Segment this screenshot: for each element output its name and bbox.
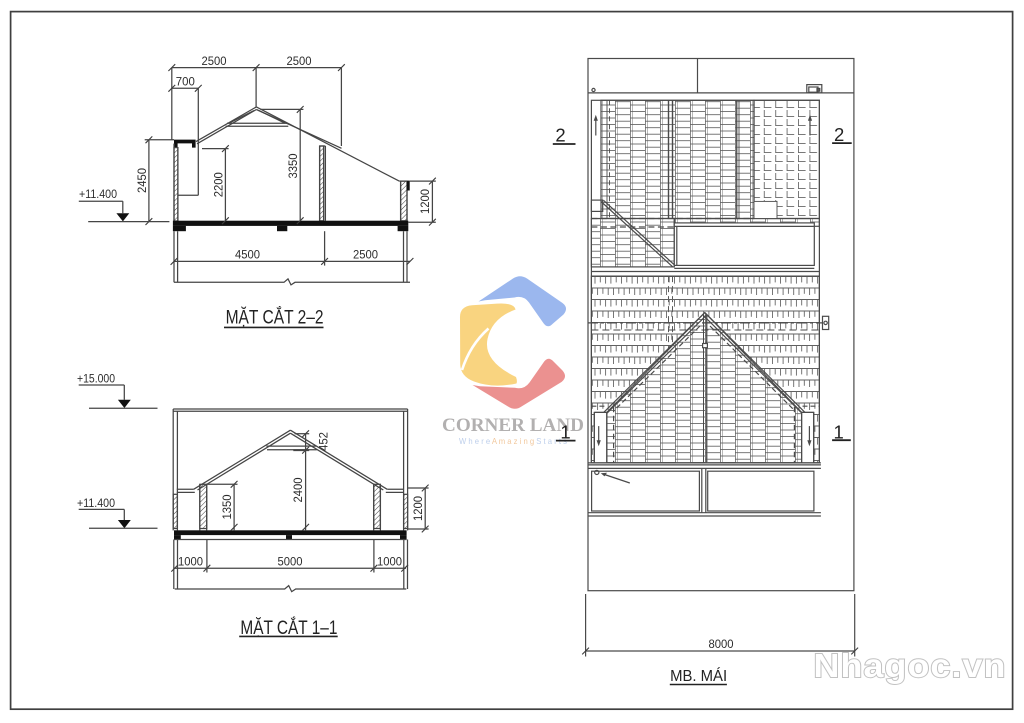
svg-text:2500: 2500 — [287, 54, 312, 68]
svg-text:452: 452 — [316, 432, 330, 451]
svg-text:+15.000: +15.000 — [77, 372, 115, 386]
svg-text:MB. MÁI: MB. MÁI — [670, 668, 727, 685]
svg-text:2500: 2500 — [353, 247, 378, 261]
svg-text:700: 700 — [176, 75, 195, 89]
svg-text:2500: 2500 — [202, 54, 227, 68]
svg-text:2: 2 — [834, 124, 844, 145]
svg-text:2400: 2400 — [291, 477, 305, 502]
svg-text:2: 2 — [555, 125, 565, 146]
svg-text:1000: 1000 — [178, 554, 203, 568]
svg-text:3350: 3350 — [286, 153, 300, 178]
svg-text:5000: 5000 — [278, 554, 303, 568]
svg-text:2200: 2200 — [211, 172, 225, 197]
svg-text:+11.400: +11.400 — [77, 496, 115, 510]
svg-text:1200: 1200 — [418, 189, 432, 214]
svg-text:4500: 4500 — [235, 247, 260, 261]
svg-text:+11.400: +11.400 — [79, 187, 117, 201]
svg-text:8000: 8000 — [709, 637, 734, 651]
svg-text:1000: 1000 — [377, 554, 402, 568]
svg-text:2450: 2450 — [135, 168, 149, 193]
svg-text:W h e r e A m a z i n g S t a: W h e r e A m a z i n g S t a r t s — [459, 436, 567, 446]
svg-text:1: 1 — [560, 422, 570, 443]
svg-text:1350: 1350 — [220, 494, 234, 519]
svg-text:1200: 1200 — [411, 496, 425, 521]
svg-text:Nhagoc.vn: Nhagoc.vn — [814, 647, 1007, 684]
svg-text:MẶT CẮT 2–2: MẶT CẮT 2–2 — [226, 307, 324, 329]
